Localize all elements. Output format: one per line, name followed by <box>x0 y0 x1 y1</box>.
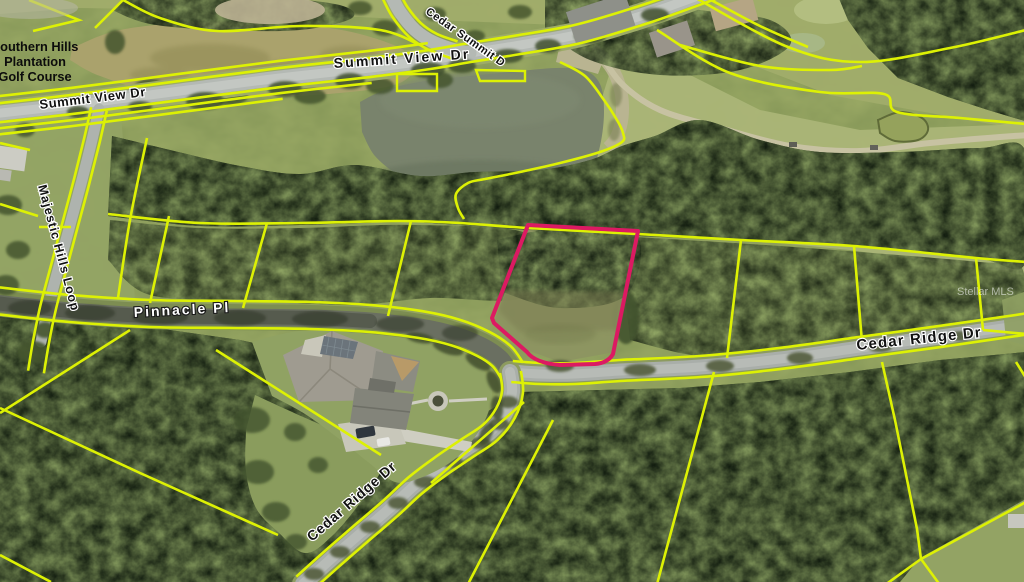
svg-text:Plantation: Plantation <box>4 54 66 69</box>
svg-text:Southern Hills: Southern Hills <box>0 39 78 54</box>
svg-text:Golf Course: Golf Course <box>0 69 72 84</box>
svg-text:Stellar MLS: Stellar MLS <box>957 286 1014 298</box>
